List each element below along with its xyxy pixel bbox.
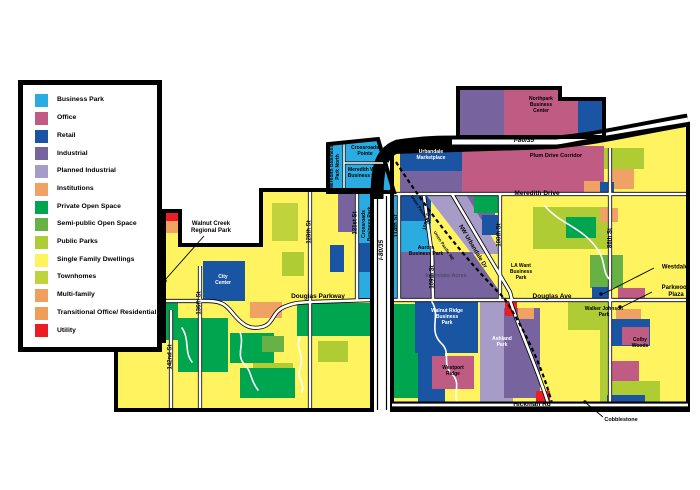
legend-swatch: [35, 147, 48, 160]
legend-label: Transitional Office/ Residential: [57, 310, 156, 317]
road-label-douglas-parkway: Douglas Parkway: [291, 293, 345, 301]
legend-label: Utility: [57, 328, 76, 335]
legend-swatch: [35, 307, 48, 320]
street-label-86th: 86th St: [607, 228, 614, 248]
area-label-northpark: Northpark Business Center: [529, 97, 553, 115]
legend-item: Retail: [35, 130, 157, 143]
legend-label: Townhomes: [57, 274, 96, 281]
legend-swatch: [35, 201, 48, 214]
callout-walnut-creek: Walnut Creek Regional Park: [191, 221, 231, 235]
legend-swatch: [35, 289, 48, 302]
street-label-121st: 121st St: [352, 211, 359, 234]
legend-swatch: [35, 271, 48, 284]
legend-swatch: [35, 254, 48, 267]
road-label-hickman-rd: Hickman Rd: [513, 401, 551, 409]
legend-item: Multi-family: [35, 289, 157, 302]
legend-swatch: [35, 236, 48, 249]
callout-cobblestone: Cobblestone: [604, 417, 637, 423]
legend-item: Single Family Dwellings: [35, 254, 157, 267]
area-label-plum-drive: Plum Drive Corridor: [530, 153, 582, 159]
legend-item: Townhomes: [35, 271, 157, 284]
legend-item: Office: [35, 112, 157, 125]
street-label-136th: 136th St: [196, 291, 203, 314]
land-use-map: Meredith Business Park North Crossroads …: [0, 0, 700, 490]
highway-label-i80-35-horizontal: I-80/35: [514, 137, 534, 145]
area-label-crossroads-bp: Crossroads Business Park: [362, 207, 374, 241]
callout-parkwood: Parkwood Plaza: [662, 285, 691, 299]
legend-item: Transitional Office/ Residential: [35, 307, 157, 320]
area-label-meredith-west: Meredith West Business Park: [348, 168, 382, 180]
road-label-meredith-drive: Meredith Drive: [514, 190, 559, 198]
street-label-142nd: 142nd St: [167, 344, 174, 369]
street-label-109th: 109th St: [429, 265, 436, 288]
area-label-ashland-park: Ashland Park: [492, 337, 512, 349]
legend-swatch: [35, 94, 48, 107]
legend-label: Industrial: [57, 151, 88, 158]
legend-label: Single Family Dwellings: [57, 257, 134, 264]
legend-swatch: [35, 130, 48, 143]
area-label-la-want: LA Want Business Park: [510, 264, 532, 282]
legend: Business Park Office Retail Industrial P…: [18, 80, 162, 352]
legend-item: Private Open Space: [35, 201, 157, 214]
legend-label: Office: [57, 115, 76, 122]
street-label-128th: 128th St: [306, 220, 313, 243]
legend-item: Institutions: [35, 183, 157, 196]
legend-label: Retail: [57, 133, 76, 140]
area-label-aurora: Aurora Business Park: [409, 246, 443, 258]
interstate-vertical: [378, 196, 387, 410]
area-label-walker-johnson: Walker Johnson Park: [585, 307, 623, 319]
legend-item: Semi-public Open Space: [35, 218, 157, 231]
legend-swatch: [35, 112, 48, 125]
legend-item: Public Parks: [35, 236, 157, 249]
legend-label: Public Parks: [57, 239, 98, 246]
street-label-114th: 114th St: [393, 214, 400, 237]
legend-label: Planned Industrial: [57, 168, 116, 175]
legend-item: Planned Industrial: [35, 165, 157, 178]
area-label-crossroads-pointe: Crossroads Pointe: [351, 146, 379, 158]
legend-swatch: [35, 218, 48, 231]
legend-swatch: [35, 183, 48, 196]
road-label-douglas-ave: Douglas Ave: [533, 293, 572, 301]
legend-item: Industrial: [35, 147, 157, 160]
area-label-city-center: City Center: [215, 275, 231, 287]
area-label-meredith-bp-north: Meredith Business Park North: [330, 145, 342, 189]
legend-label: Business Park: [57, 97, 104, 104]
street-label-100th: 100th St: [496, 223, 503, 246]
legend-label: Institutions: [57, 186, 94, 193]
legend-item: Utility: [35, 324, 157, 337]
area-label-colby-woods: Colby Woods: [632, 338, 649, 350]
area-label-westport-ridge: Westport Ridge: [442, 366, 464, 378]
highway-label-i80-35-vertical: I-80/35: [378, 240, 386, 260]
legend-label: Multi-family: [57, 292, 95, 299]
legend-label: Semi-public Open Space: [57, 221, 137, 228]
legend-swatch: [35, 165, 48, 178]
callout-westdale: Westdale: [662, 264, 688, 271]
legend-label: Private Open Space: [57, 204, 121, 211]
legend-item: Business Park: [35, 94, 157, 107]
area-label-urbandale-marketplace: Urbandale Marketplace: [417, 150, 446, 162]
area-label-walnut-ridge: Walnut Ridge Business Park: [431, 309, 463, 327]
legend-swatch: [35, 324, 48, 337]
